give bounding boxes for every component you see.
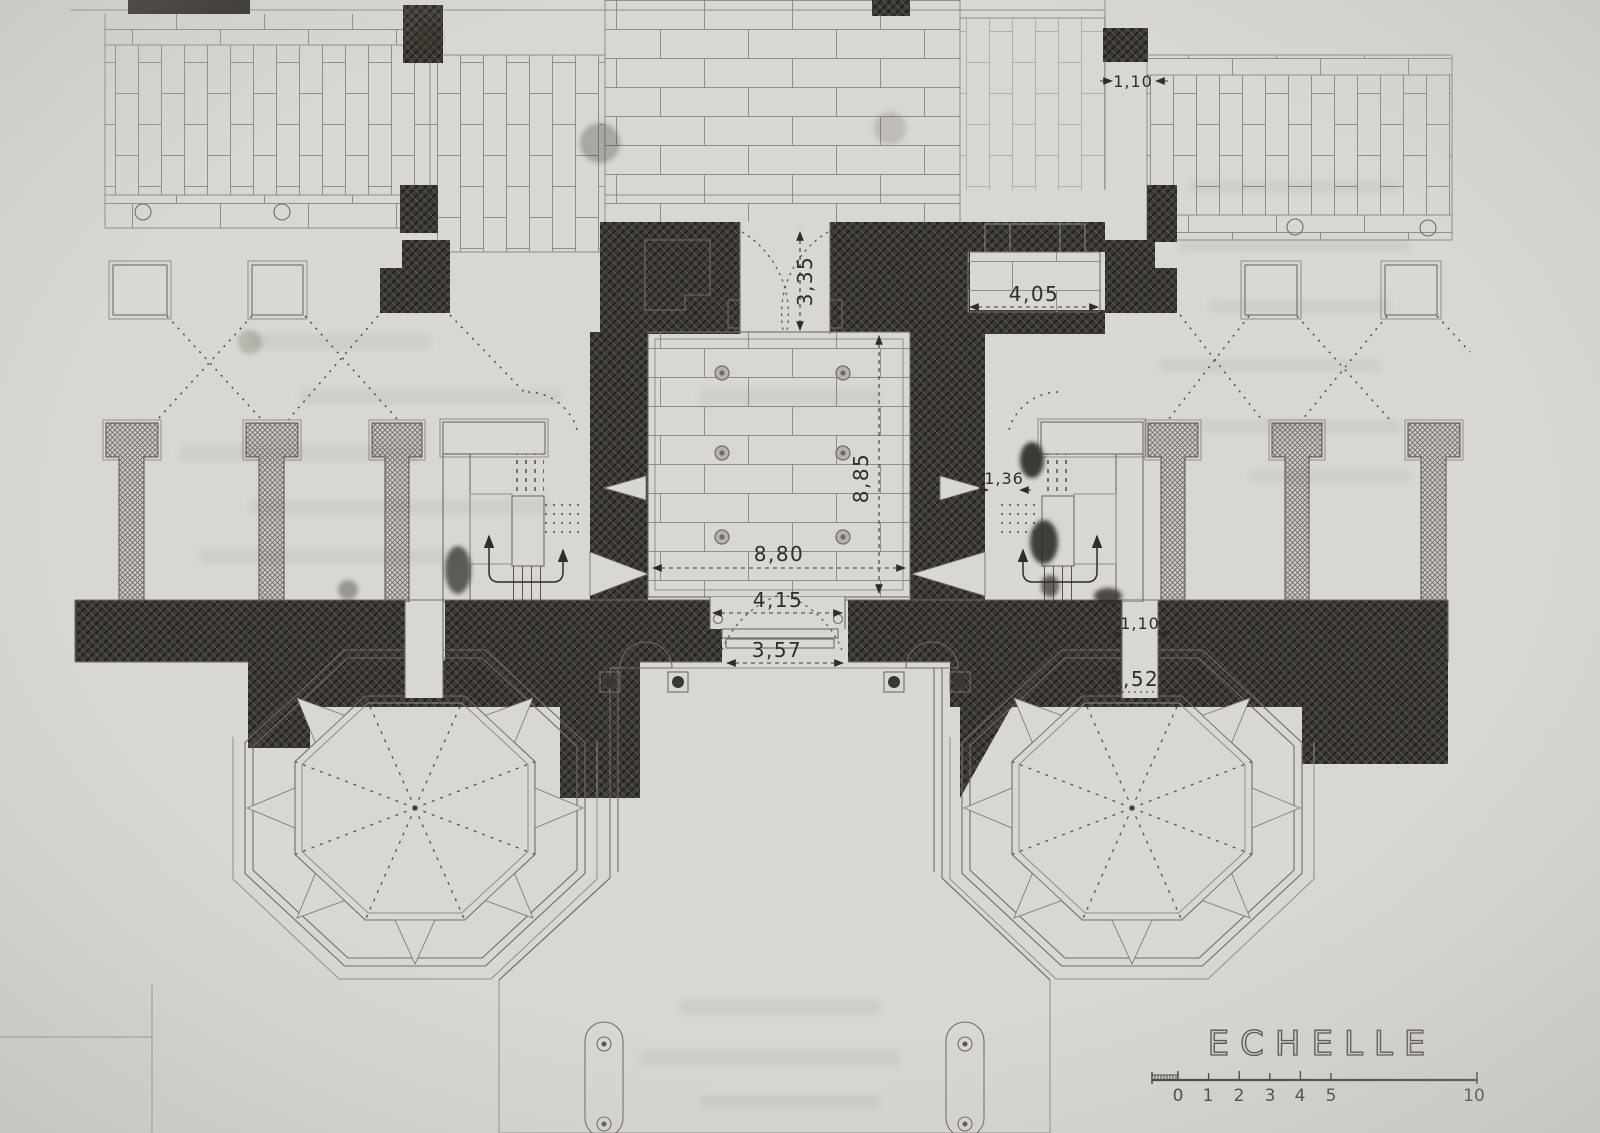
- floor-plan-scan: 1,10 3,35 4,05 8,85 8,80 1,36 4,15 3,57 …: [0, 0, 1600, 1133]
- vignette: [0, 0, 1600, 1133]
- floor-plan-drawing: 1,10 3,35 4,05 8,85 8,80 1,36 4,15 3,57 …: [0, 0, 1600, 1133]
